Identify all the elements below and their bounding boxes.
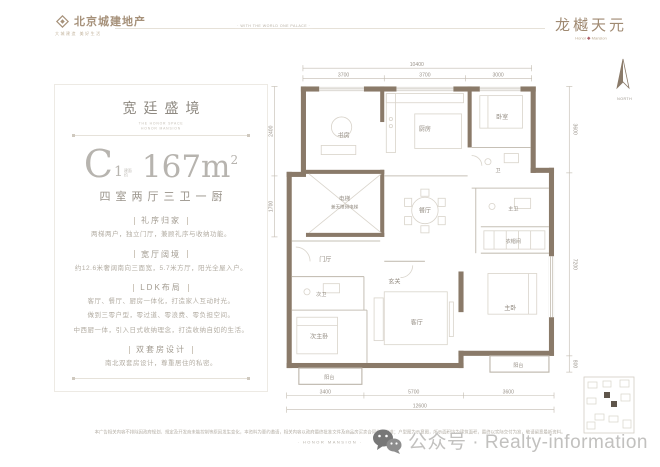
- svg-text:2400: 2400: [268, 125, 274, 136]
- svg-text:3000: 3000: [492, 72, 503, 78]
- header-rule: [115, 28, 545, 29]
- panel-subtitle: THE HONOR SPACE HONOR MANSION: [116, 121, 205, 125]
- poster-page: 北京城建地产 大城建造 美好生活 · WITH THE WORLD ONE PA…: [0, 0, 660, 467]
- section-line: 客厅、餐厅、厨房一体化，打造家人互动时光。: [55, 296, 267, 307]
- room-elevator: 电梯: [339, 194, 351, 202]
- developer-tagline: 大城建造 美好生活: [55, 31, 102, 37]
- room-master-bath: 主卫: [508, 205, 518, 212]
- svg-text:5700: 5700: [408, 389, 419, 395]
- section-4: 双套房设计 南北双套房设计，尊重居住的私密。: [55, 344, 267, 369]
- divider-top: [73, 135, 249, 136]
- section-line: 约12.6米奢阔南向三面宽，5.7米方厅，阳光全屋入户。: [55, 263, 267, 274]
- room-dining: 餐厅: [419, 207, 431, 215]
- section-line: 做到三零户型，零过道、零浪费、零负担空间。: [55, 310, 267, 321]
- seal-icon: [587, 36, 591, 40]
- header-note: · WITH THE WORLD ONE PALACE ·: [235, 24, 312, 28]
- diamond-logo-icon: [55, 14, 70, 29]
- key-plan-drawing: [583, 376, 635, 434]
- room-closet: 衣帽间: [506, 238, 521, 245]
- room-living: 客厅: [411, 318, 423, 326]
- partitions: [292, 147, 549, 363]
- dim-labels-right: 3600 7200 800: [571, 124, 577, 369]
- room-labels: 书房 厨房 卧室 卫 电梯 兼无障碍电梯 门厅 餐厅 玄关 客厅 次卫 次主卧 …: [310, 113, 523, 381]
- divider-bottom: [73, 378, 249, 379]
- info-panel: 宽廷盛境 THE HONOR SPACE HONOR MANSION C 1 建…: [54, 84, 268, 392]
- area-value: 167m: [142, 154, 231, 180]
- room-second-master: 次主卧: [310, 333, 328, 341]
- layout-text: 四室两厅三卫一厨: [55, 188, 267, 204]
- project-logo: 龙樾天元 Honor Mansion: [546, 14, 636, 45]
- svg-text:12600: 12600: [413, 404, 427, 410]
- north-arrow: NORTH: [610, 56, 636, 106]
- windows: [319, 86, 554, 317]
- unit-number: 1: [114, 165, 123, 179]
- section-2: 宽厅阔境 约12.6米奢阔南向三面宽，5.7米方厅，阳光全屋入户。: [55, 249, 267, 274]
- svg-text:3400: 3400: [320, 389, 331, 395]
- wechat-icon: [372, 428, 402, 454]
- svg-text:10400: 10400: [410, 62, 424, 68]
- svg-text:3600: 3600: [571, 124, 577, 135]
- unit-area: C 1 建面约 167m 2: [55, 148, 267, 180]
- north-label: NORTH: [617, 97, 629, 101]
- dim-labels-bottom: 3400 5700 3600 12600: [320, 389, 514, 409]
- area-note: 建面约: [124, 169, 134, 178]
- section-line: 中西厨一体，引入日式收纳理念，打造收纳自如的生活。: [55, 325, 267, 336]
- project-name: 龙樾天元: [546, 14, 636, 35]
- developer-name: 北京城建地产: [74, 13, 146, 29]
- section-heading: LDK布局: [140, 282, 182, 293]
- room-hall: 门厅: [319, 255, 331, 263]
- balconies: [299, 356, 549, 384]
- section-heading: 宽厅阔境: [141, 249, 181, 260]
- dim-lines-left: [271, 86, 277, 236]
- dim-lines-bottom: [287, 392, 554, 412]
- project-subtitle: Honor Mansion: [569, 36, 614, 41]
- room-elevator-note: 兼无障碍电梯: [331, 203, 359, 210]
- svg-text:3600: 3600: [503, 389, 514, 395]
- watermark-text: 公众号 · Realty-information: [408, 427, 648, 454]
- room-second-bath: 次卫: [316, 291, 326, 298]
- unit-letter: C: [84, 148, 113, 180]
- room-bath: 卫: [496, 168, 501, 174]
- section-1: 礼序归家 两梯两户，独立门厅，兼顾礼序与收纳功能。: [55, 215, 267, 240]
- area-superscript: 2: [230, 154, 238, 166]
- dim-labels-top: 10400 3700 3700 3000: [338, 62, 504, 78]
- floor-plan: 10400 3700 3700 3000: [262, 58, 598, 426]
- section-line: 两梯两户，独立门厅，兼顾礼序与收纳功能。: [55, 229, 267, 240]
- dim-labels-left: 2400 1700: [268, 125, 274, 212]
- section-3: LDK布局 客厅、餐厅、厨房一体化，打造家人互动时光。 做到三零户型，零过道、零…: [55, 282, 267, 336]
- svg-text:3700: 3700: [338, 72, 349, 78]
- section-heading: 礼序归家: [141, 215, 181, 226]
- panel-title: 宽廷盛境: [55, 98, 267, 118]
- section-heading: 双套房设计: [136, 344, 186, 355]
- room-kitchen: 厨房: [419, 125, 431, 133]
- svg-text:3700: 3700: [419, 72, 430, 78]
- room-balcony-right: 阳台: [513, 362, 523, 369]
- room-bedroom: 卧室: [496, 113, 508, 121]
- svg-text:1700: 1700: [268, 201, 274, 212]
- room-master: 主卧: [504, 304, 516, 312]
- room-balcony-left: 阳台: [324, 374, 334, 381]
- svg-text:800: 800: [571, 360, 577, 369]
- floor-plan-drawing: 10400 3700 3700 3000: [262, 58, 598, 426]
- room-foyer: 玄关: [388, 278, 400, 286]
- watermark: 公众号 · Realty-information: [372, 427, 648, 454]
- north-arrow-icon: [610, 56, 636, 92]
- room-study: 书房: [338, 131, 350, 139]
- feature-sections: 礼序归家 两梯两户，独立门厅，兼顾礼序与收纳功能。 宽厅阔境 约12.6米奢阔南…: [55, 215, 267, 369]
- svg-text:7200: 7200: [571, 259, 577, 270]
- section-line: 南北双套房设计，尊重居住的私密。: [55, 358, 267, 369]
